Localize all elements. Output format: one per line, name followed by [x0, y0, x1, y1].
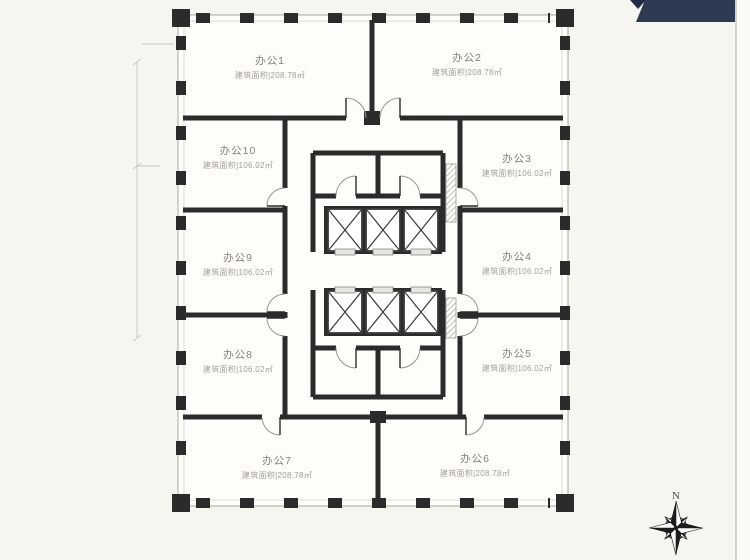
unit-9-label: 办公9 建筑面积|106.02㎡	[203, 250, 273, 278]
unit-4-label: 办公4 建筑面积|106.02㎡	[482, 249, 552, 277]
elevator-bank-top	[324, 206, 442, 255]
unit-area: 建筑面积|106.02㎡	[203, 364, 273, 375]
unit-name: 办公1	[235, 53, 305, 68]
floorplan-drawing	[0, 0, 750, 560]
unit-7-label: 办公7 建筑面积|208.78㎡	[242, 453, 312, 481]
unit-name: 办公9	[203, 250, 273, 265]
elevator-doors-top	[335, 249, 431, 255]
unit-area: 建筑面积|106.02㎡	[482, 168, 552, 179]
page-right-border	[735, 0, 750, 560]
unit-name: 办公6	[440, 451, 510, 466]
unit-name: 办公4	[482, 249, 552, 264]
unit-area: 建筑面积|208.78㎡	[235, 70, 305, 81]
unit-area: 建筑面积|208.78㎡	[432, 67, 502, 78]
unit-area: 建筑面积|106.02㎡	[203, 160, 273, 171]
unit-name: 办公5	[482, 346, 552, 361]
unit-8-label: 办公8 建筑面积|106.02㎡	[203, 347, 273, 375]
unit-name: 办公7	[242, 453, 312, 468]
unit-area: 建筑面积|106.02㎡	[482, 363, 552, 374]
unit-area: 建筑面积|106.02㎡	[482, 266, 552, 277]
floorplan-page: 办公1 建筑面积|208.78㎡ 办公2 建筑面积|208.78㎡ 办公3 建筑…	[0, 0, 750, 560]
unit-2-label: 办公2 建筑面积|208.78㎡	[432, 50, 502, 78]
unit-area: 建筑面积|208.78㎡	[440, 468, 510, 479]
center-column-bottom	[370, 411, 386, 423]
dimension-lines	[133, 44, 174, 341]
ribbon-tab	[630, 0, 735, 22]
unit-name: 办公2	[432, 50, 502, 65]
unit-area: 建筑面积|106.02㎡	[203, 267, 273, 278]
unit-1-label: 办公1 建筑面积|208.78㎡	[235, 53, 305, 81]
unit-6-label: 办公6 建筑面积|208.78㎡	[440, 451, 510, 479]
unit-name: 办公10	[203, 143, 273, 158]
unit-name: 办公3	[482, 151, 552, 166]
unit-5-label: 办公5 建筑面积|106.02㎡	[482, 346, 552, 374]
compass-north-label: N	[672, 490, 680, 502]
unit-3-label: 办公3 建筑面积|106.02㎡	[482, 151, 552, 179]
unit-name: 办公8	[203, 347, 273, 362]
elevator-bank-bottom	[324, 287, 442, 336]
elevator-doors-bottom	[335, 287, 431, 293]
compass-rose	[649, 501, 703, 555]
unit-10-label: 办公10 建筑面积|106.02㎡	[203, 143, 273, 171]
unit-area: 建筑面积|208.78㎡	[242, 470, 312, 481]
